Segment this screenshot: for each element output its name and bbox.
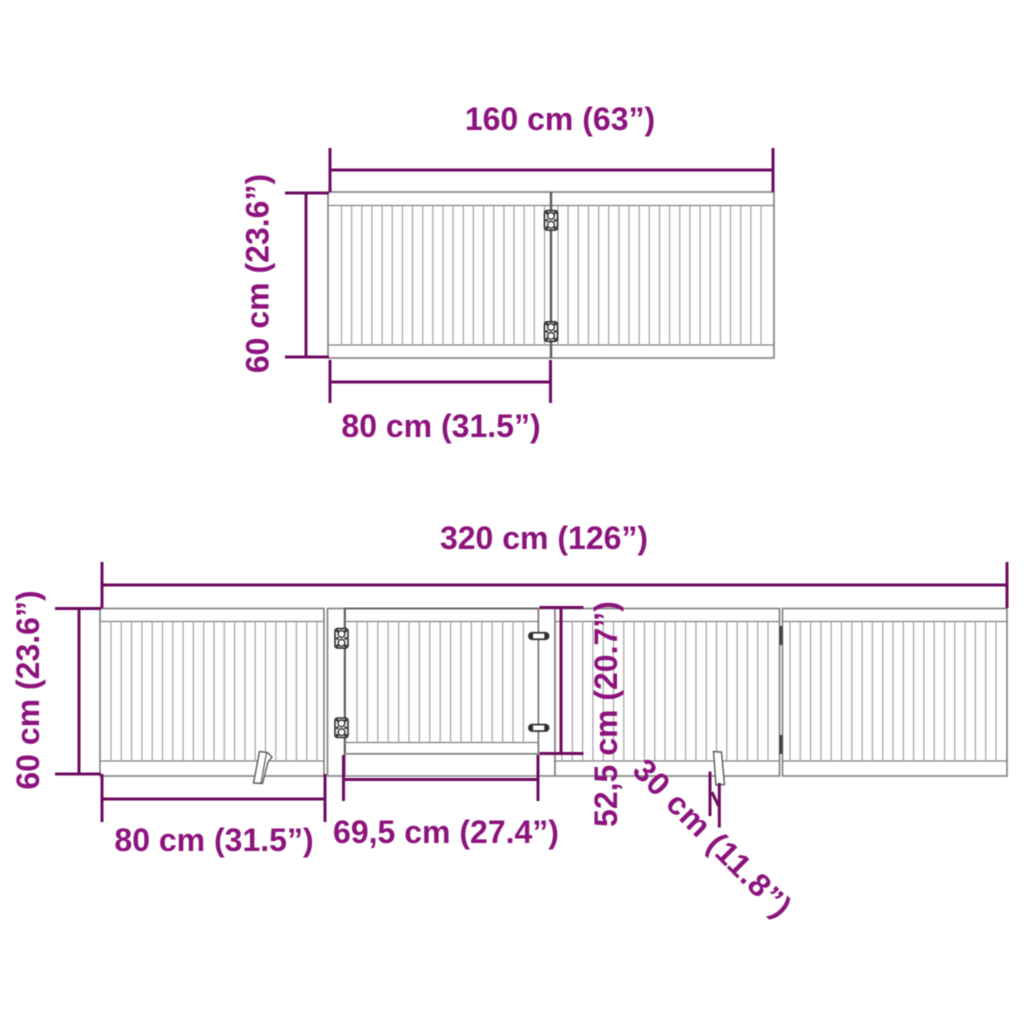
- svg-text:52,5 cm (20.7”): 52,5 cm (20.7”): [588, 601, 624, 827]
- svg-text:320 cm (126”): 320 cm (126”): [440, 520, 648, 556]
- svg-text:69,5 cm (27.4”): 69,5 cm (27.4”): [333, 814, 559, 850]
- svg-text:80 cm (31.5”): 80 cm (31.5”): [341, 408, 540, 444]
- svg-text:60 cm (23.6”): 60 cm (23.6”): [10, 590, 46, 789]
- svg-text:160 cm (63”): 160 cm (63”): [465, 101, 655, 137]
- svg-text:80 cm (31.5”): 80 cm (31.5”): [114, 822, 313, 858]
- svg-text:60 cm (23.6”): 60 cm (23.6”): [240, 174, 276, 373]
